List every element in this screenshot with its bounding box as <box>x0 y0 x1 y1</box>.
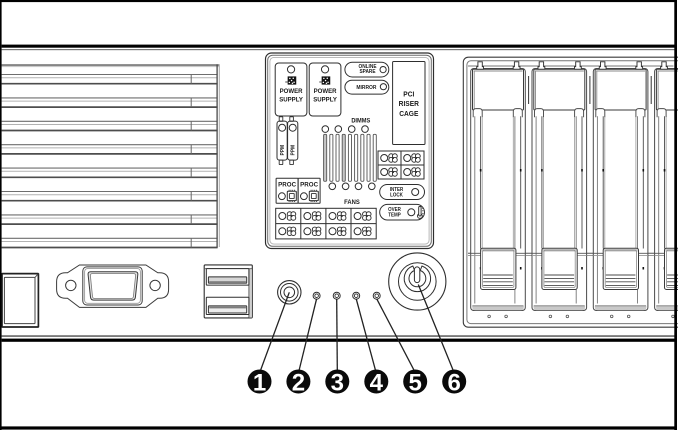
svg-text:RISER: RISER <box>399 101 419 108</box>
svg-text:2: 2 <box>292 369 305 396</box>
svg-text:PCI: PCI <box>403 91 414 98</box>
svg-text:SUPPLY: SUPPLY <box>279 96 303 103</box>
svg-text:POWER: POWER <box>314 88 337 95</box>
svg-text:4: 4 <box>370 369 384 396</box>
svg-text:PPM: PPM <box>290 145 296 156</box>
svg-text:1: 1 <box>253 369 266 396</box>
svg-text:CAGE: CAGE <box>399 111 419 118</box>
svg-text:MIRROR: MIRROR <box>356 85 376 91</box>
svg-text:INTER: INTER <box>390 187 404 193</box>
svg-text:SPARE: SPARE <box>359 69 376 75</box>
svg-text:POWER: POWER <box>280 88 303 95</box>
svg-text:DIMMS: DIMMS <box>351 118 370 124</box>
svg-text:PPM: PPM <box>280 145 286 156</box>
svg-text:FANS: FANS <box>344 199 360 206</box>
svg-text:3: 3 <box>331 369 344 396</box>
svg-text:PROC: PROC <box>278 181 296 188</box>
svg-text:5: 5 <box>409 369 422 396</box>
svg-text:6: 6 <box>448 369 461 396</box>
svg-text:OVER: OVER <box>388 207 401 213</box>
svg-text:SUPPLY: SUPPLY <box>313 96 337 103</box>
svg-text:PROC: PROC <box>300 181 318 188</box>
svg-text:LOCK: LOCK <box>390 192 403 198</box>
svg-text:TEMP: TEMP <box>388 212 400 218</box>
